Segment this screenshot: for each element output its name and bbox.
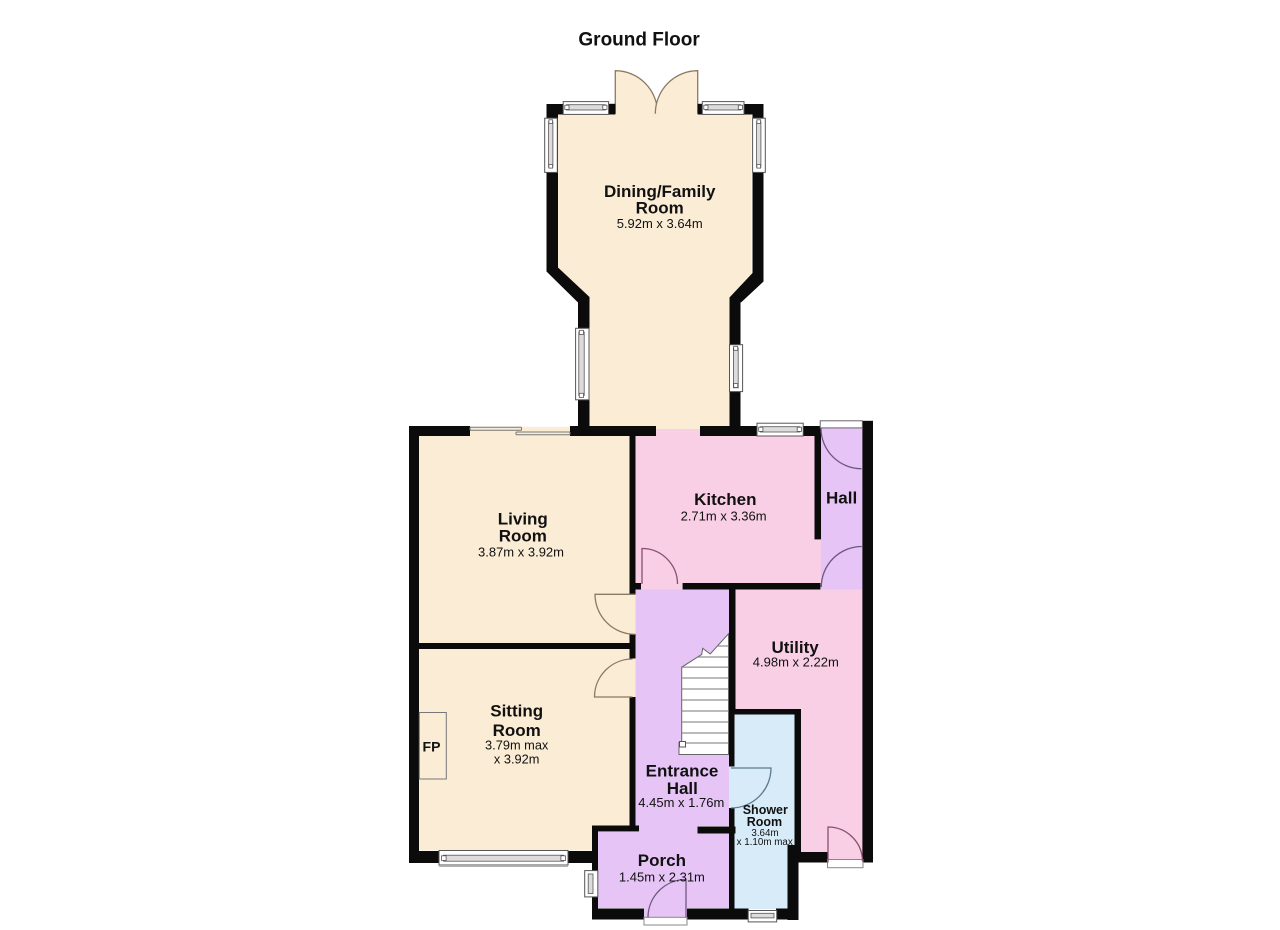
svg-text:Hall: Hall <box>826 489 857 508</box>
svg-text:2.71m x 3.36m: 2.71m x 3.36m <box>681 508 767 523</box>
svg-text:4.45m x 1.76m: 4.45m x 1.76m <box>638 795 724 810</box>
svg-text:5.92m x 3.64m: 5.92m x 3.64m <box>617 216 703 231</box>
svg-text:Kitchen: Kitchen <box>694 490 756 509</box>
svg-text:Ground Floor: Ground Floor <box>578 30 700 51</box>
svg-text:3.87m x 3.92m: 3.87m x 3.92m <box>478 545 564 560</box>
svg-text:Porch: Porch <box>638 851 686 870</box>
svg-text:4.98m x 2.22m: 4.98m x 2.22m <box>753 655 839 670</box>
svg-text:Room: Room <box>636 199 684 218</box>
svg-text:Entrance: Entrance <box>646 761 719 780</box>
svg-text:1.45m x 2.31m: 1.45m x 2.31m <box>619 870 705 885</box>
svg-text:x 3.92m: x 3.92m <box>494 751 540 766</box>
svg-text:3.79m max: 3.79m max <box>485 738 549 753</box>
svg-text:Room: Room <box>747 815 782 829</box>
svg-text:x 1.10m max: x 1.10m max <box>737 837 793 848</box>
svg-text:Sitting: Sitting <box>490 702 543 721</box>
svg-text:FP: FP <box>423 739 441 755</box>
svg-text:Room: Room <box>499 527 547 546</box>
